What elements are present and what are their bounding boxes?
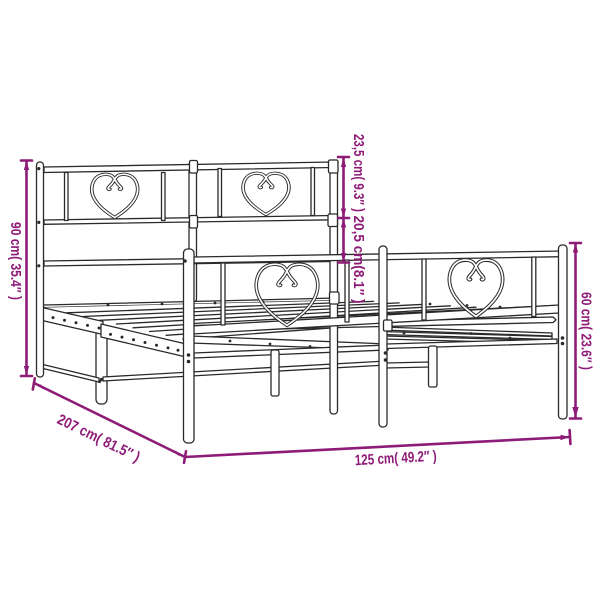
svg-text:20,5 cm(8.1″ ): 20,5 cm(8.1″ ) <box>350 216 367 304</box>
svg-text:125 cm( 49.2″ ): 125 cm( 49.2″ ) <box>354 448 437 470</box>
svg-text:90 cm( 35.4″ ): 90 cm( 35.4″ ) <box>7 222 24 300</box>
svg-text:23,5 cm( 9.3″ ): 23,5 cm( 9.3″ ) <box>350 134 367 212</box>
svg-text:207 cm( 81.5″ ): 207 cm( 81.5″ ) <box>54 411 142 466</box>
svg-text:60 cm( 23.6″ ): 60 cm( 23.6″ ) <box>578 292 595 370</box>
